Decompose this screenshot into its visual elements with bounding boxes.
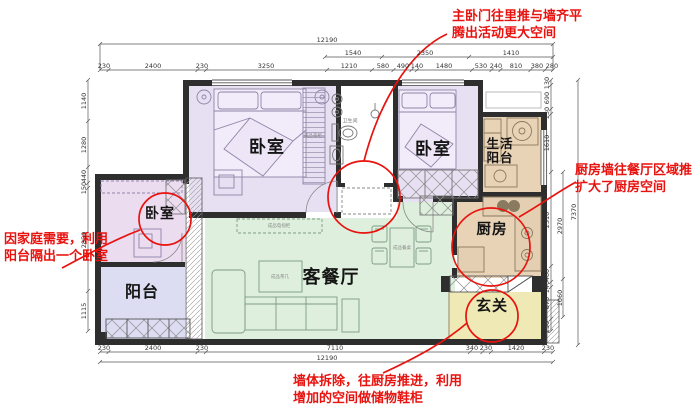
annotation-right: 厨房墙往餐厅区域推 扩大了厨房空间: [575, 162, 692, 196]
room-label-entry: 玄关: [476, 298, 508, 315]
dim-label: 380: [531, 62, 543, 70]
fridge-icon: [458, 247, 484, 272]
dim-label: 230: [480, 344, 492, 352]
dim-label: 12190: [317, 36, 338, 44]
furniture-label-dining-set: 成品餐桌: [393, 245, 411, 251]
dim-label: 440: [80, 170, 88, 182]
dim-label: 230: [98, 62, 110, 70]
room-label-bathroom: 卫生间: [342, 118, 357, 125]
insulated-party-wall: [186, 178, 202, 339]
dim-label: 230: [98, 344, 110, 352]
sideboard-icon: [420, 196, 453, 215]
dim-label: 240: [490, 62, 502, 70]
floorplan-page: 卧室 卧室 卧室 客餐厅 阳台 生活 阳台 厨房 玄关 卫生间 成品衣柜 成品电…: [0, 0, 700, 420]
dim-label: 2970: [556, 218, 564, 235]
dim-label: 130: [543, 107, 551, 119]
annotation-top: 主卧门往里推与墙齐平 腾出活动更大空间: [452, 8, 582, 42]
entry-door-icon: [508, 276, 532, 292]
dim-label: 1410: [503, 49, 520, 57]
dim-label: 2400: [145, 62, 162, 70]
dim-label: 1060: [556, 290, 564, 307]
dim-label: 140: [543, 281, 551, 293]
dim-label: 2510: [543, 212, 551, 229]
room-label-living-dining: 客餐厅: [303, 268, 360, 288]
dim-label: 1210: [341, 62, 358, 70]
dim-label: 1420: [508, 344, 525, 352]
dim-label: 870: [543, 297, 551, 309]
room-label-balcony: 阳台: [125, 283, 159, 301]
dim-label: 2850: [80, 232, 88, 249]
dim-label: 150: [80, 182, 88, 194]
dim-label: 7370: [570, 204, 578, 221]
dim-label: 530: [475, 62, 487, 70]
dim-label: 1280: [80, 137, 88, 154]
dim-label: 12190: [317, 354, 338, 362]
dim-label: 810: [510, 62, 522, 70]
room-label-service-balcony: 生活 阳台: [486, 137, 513, 165]
dim-label: 1540: [345, 49, 362, 57]
dim-label: 230: [542, 344, 554, 352]
annotation-bottom: 墙体拆除，往厨房推进，利用 增加的空间做储物鞋柜: [293, 373, 462, 407]
annotation-left: 因家庭需要，利用 阳台隔出一个卧室: [4, 231, 108, 265]
dim-label: 1140: [80, 93, 88, 110]
dim-label: 2350: [417, 49, 434, 57]
dim-label: 340: [466, 344, 478, 352]
bed-master-icon: [214, 89, 306, 177]
dim-label: 690: [543, 92, 551, 104]
wardrobe2-icon: [398, 170, 478, 198]
relocated-door-outline: [342, 188, 391, 214]
dim-label: 1115: [80, 303, 88, 320]
dim-label: 230: [543, 321, 551, 333]
dim-label: 1480: [436, 62, 453, 70]
dim-label: 460: [543, 269, 551, 281]
dim-label: 280: [546, 62, 558, 70]
dim-label: 140: [411, 62, 423, 70]
dim-label: 3250: [258, 62, 275, 70]
dim-label: 2400: [145, 344, 162, 352]
furniture-label-coffee-table: 成品茶几: [271, 274, 289, 280]
ac-ledge: [486, 92, 541, 108]
furniture-label-tv-cabinet: 成品电视柜: [268, 223, 291, 229]
dim-label: 7110: [327, 344, 344, 352]
furniture-label-wardrobe: 成品衣柜: [304, 133, 322, 139]
dim-label: 580: [377, 62, 389, 70]
room-label-kitchen: 厨房: [477, 222, 508, 238]
dim-label: 230: [196, 62, 208, 70]
room-label-master-bedroom: 卧室: [249, 138, 285, 157]
dim-label: 490: [397, 62, 409, 70]
room-label-bedroom2: 卧室: [415, 140, 451, 159]
dim-label: 1610: [543, 135, 551, 152]
room-label-small-bedroom: 卧室: [145, 207, 175, 223]
dim-label: 130: [543, 77, 551, 89]
dim-label: 230: [196, 344, 208, 352]
